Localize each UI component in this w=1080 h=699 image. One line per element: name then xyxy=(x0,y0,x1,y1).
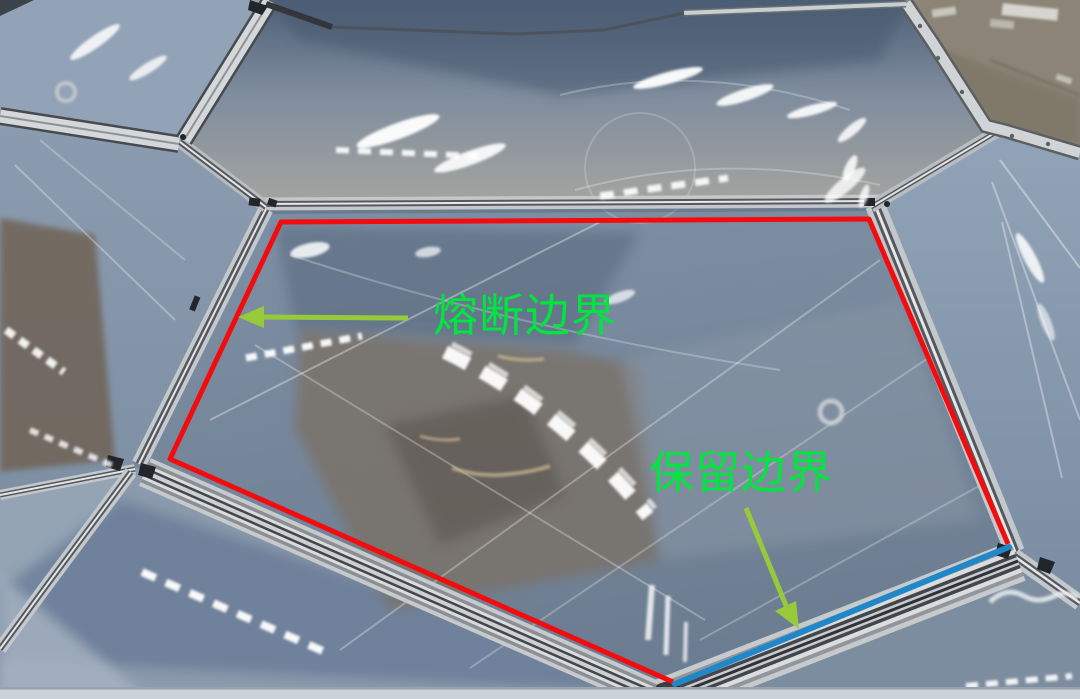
annotated-roof-photo: 熔断边界 保留边界 xyxy=(0,0,1080,699)
roof-photo-illustration xyxy=(0,0,1080,699)
keep-boundary-label: 保留边界 xyxy=(649,450,833,495)
fuse-boundary-label: 熔断边界 xyxy=(433,293,617,338)
photo-bottom-band-edge xyxy=(0,687,1080,690)
photo-bottom-band xyxy=(0,689,1080,699)
